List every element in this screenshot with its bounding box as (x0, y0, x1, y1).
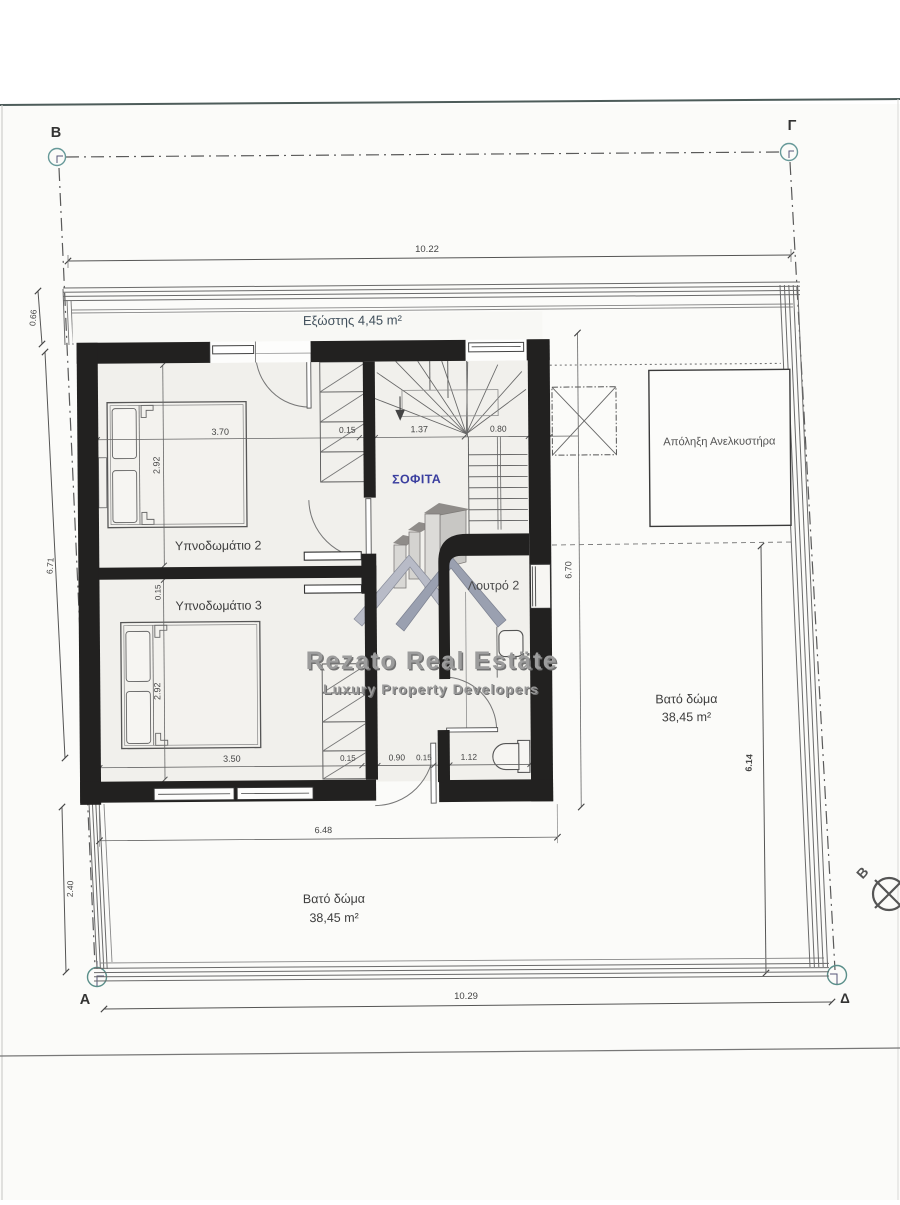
svg-text:6.71: 6.71 (44, 557, 55, 574)
svg-text:2.40: 2.40 (65, 880, 76, 897)
svg-text:3.50: 3.50 (223, 754, 241, 764)
svg-text:A: A (80, 992, 91, 1008)
svg-text:0.66: 0.66 (27, 309, 38, 327)
svg-text:0.15: 0.15 (340, 754, 356, 763)
svg-text:0.15: 0.15 (416, 753, 432, 762)
svg-text:1.37: 1.37 (410, 424, 428, 434)
svg-text:0.80: 0.80 (490, 424, 507, 434)
svg-text:0.15: 0.15 (339, 425, 356, 435)
svg-text:0.90: 0.90 (389, 752, 406, 762)
svg-text:38,45 m²: 38,45 m² (309, 911, 358, 925)
svg-text:3.70: 3.70 (211, 427, 229, 437)
svg-text:6.70: 6.70 (563, 561, 573, 579)
svg-text:Βατό δώμα: Βατό δώμα (303, 892, 365, 906)
svg-text:Luxury Property Developers: Luxury Property Developers (323, 681, 539, 697)
svg-text:38,45 m²: 38,45 m² (662, 710, 711, 724)
svg-text:Υπνοδωμάτιο 3: Υπνοδωμάτιο 3 (175, 598, 262, 613)
svg-text:Γ: Γ (788, 118, 797, 134)
svg-text:6.14: 6.14 (744, 754, 755, 772)
svg-text:Βατό δώμα: Βατό δώμα (655, 692, 717, 706)
svg-text:Λουτρό 2: Λουτρό 2 (468, 578, 520, 592)
svg-text:B: B (51, 125, 61, 141)
svg-text:6.48: 6.48 (315, 825, 333, 835)
svg-text:Rezato Real Estäte: Rezato Real Estäte (306, 647, 559, 675)
svg-text:1.12: 1.12 (461, 752, 478, 762)
svg-text:2.92: 2.92 (152, 682, 162, 700)
svg-text:ΣΟΦΙΤΑ: ΣΟΦΙΤΑ (392, 472, 441, 486)
svg-text:10.29: 10.29 (454, 991, 478, 1002)
svg-text:Υπνοδωμάτιο 2: Υπνοδωμάτιο 2 (175, 538, 262, 553)
svg-text:10.22: 10.22 (415, 244, 439, 255)
svg-text:Εξώστης 4,45 m²: Εξώστης 4,45 m² (303, 312, 403, 328)
svg-text:2.92: 2.92 (151, 456, 161, 474)
svg-text:0.15: 0.15 (153, 584, 162, 600)
svg-text:Απόληξη Ανελκυστήρα: Απόληξη Ανελκυστήρα (663, 435, 776, 448)
svg-text:Δ: Δ (840, 991, 850, 1006)
